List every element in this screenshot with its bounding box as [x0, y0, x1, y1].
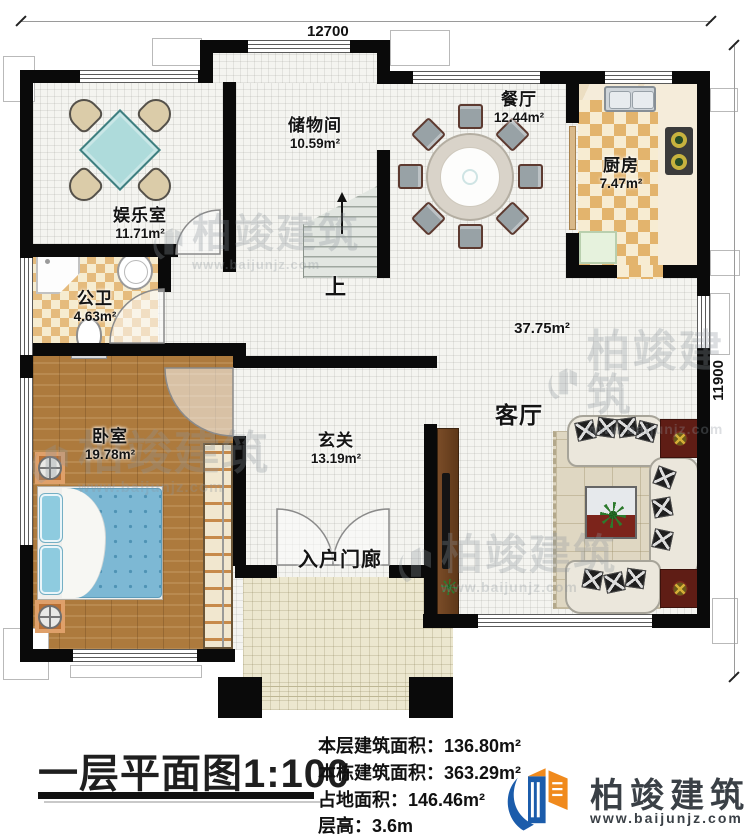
room-name: 娱乐室 — [113, 201, 167, 226]
brand-url: www.baijunjz.com — [590, 810, 743, 826]
room-name: 玄关 — [311, 426, 361, 451]
room-area: 11.71m² — [113, 226, 167, 241]
room-label-bedroom: 卧室 19.78m² — [85, 422, 135, 462]
room-area: 13.19m² — [311, 451, 361, 466]
room-area: 10.59m² — [288, 136, 342, 151]
stat-storey-height: 层高：3.6m — [318, 812, 413, 837]
dimension-width: 12700 — [303, 23, 353, 40]
room-label-hall: 玄关 13.19m² — [311, 426, 361, 466]
room-label-entertainment: 娱乐室 11.71m² — [113, 201, 167, 241]
room-label-dining: 餐厅 12.44m² — [494, 85, 544, 125]
living-area-label: 37.75m² — [514, 320, 570, 337]
room-name: 客厅 — [495, 396, 543, 430]
room-name: 入户门廊 — [298, 543, 382, 572]
room-name: 餐厅 — [494, 85, 544, 110]
room-name: 公卫 — [74, 284, 117, 309]
room-label-living: 客厅 — [495, 396, 543, 430]
room-area: 19.78m² — [85, 447, 135, 462]
room-name: 储物间 — [288, 111, 342, 136]
room-area: 7.47m² — [600, 176, 643, 191]
door-arcs-layer — [0, 0, 750, 730]
entertainment-door — [176, 210, 220, 254]
bedroom-door — [165, 368, 233, 436]
room-label-bathroom: 公卫 4.63m² — [74, 284, 117, 324]
plan-title: 一层平面图1:100 — [38, 741, 350, 799]
room-area: 4.63m² — [74, 309, 117, 324]
stat-label: 本层建筑面积： — [318, 736, 444, 756]
stairs-direction-label: 上 — [325, 271, 347, 301]
room-label-kitchen: 厨房 7.47m² — [600, 151, 643, 191]
room-label-storage: 储物间 10.59m² — [288, 111, 342, 151]
room-area: 12.44m² — [494, 110, 544, 125]
title-underline — [38, 792, 314, 799]
dimension-line-right — [734, 46, 735, 678]
dimension-line-top — [20, 21, 712, 22]
room-name: 卧室 — [85, 422, 135, 447]
stat-label: 本栋建筑面积： — [318, 763, 444, 783]
bathroom-door — [110, 289, 164, 343]
room-name: 厨房 — [600, 151, 643, 176]
stat-label: 占地面积： — [318, 790, 408, 810]
brand-logo-icon — [497, 766, 581, 832]
stairs-up-text: 上 — [325, 271, 347, 301]
stat-value: 146.46m² — [408, 790, 485, 810]
stat-value: 3.6m — [372, 816, 413, 836]
stat-floor-area: 本层建筑面积：136.80m² — [318, 732, 521, 758]
stat-building-area: 本栋建筑面积：363.29m² — [318, 759, 521, 785]
dimension-height: 11900 — [710, 356, 727, 405]
floor-plan-page: 柏竣建筑 www.baijunjz.com 柏竣建筑 www.baijunjz.… — [0, 0, 750, 837]
stat-footprint-area: 占地面积：146.46m² — [318, 786, 485, 812]
room-area: 37.75m² — [514, 320, 570, 337]
stat-label: 层高： — [318, 816, 372, 836]
stat-value: 136.80m² — [444, 736, 521, 756]
title-underline-shadow — [44, 801, 320, 803]
room-label-porch: 入户门廊 — [298, 543, 382, 572]
